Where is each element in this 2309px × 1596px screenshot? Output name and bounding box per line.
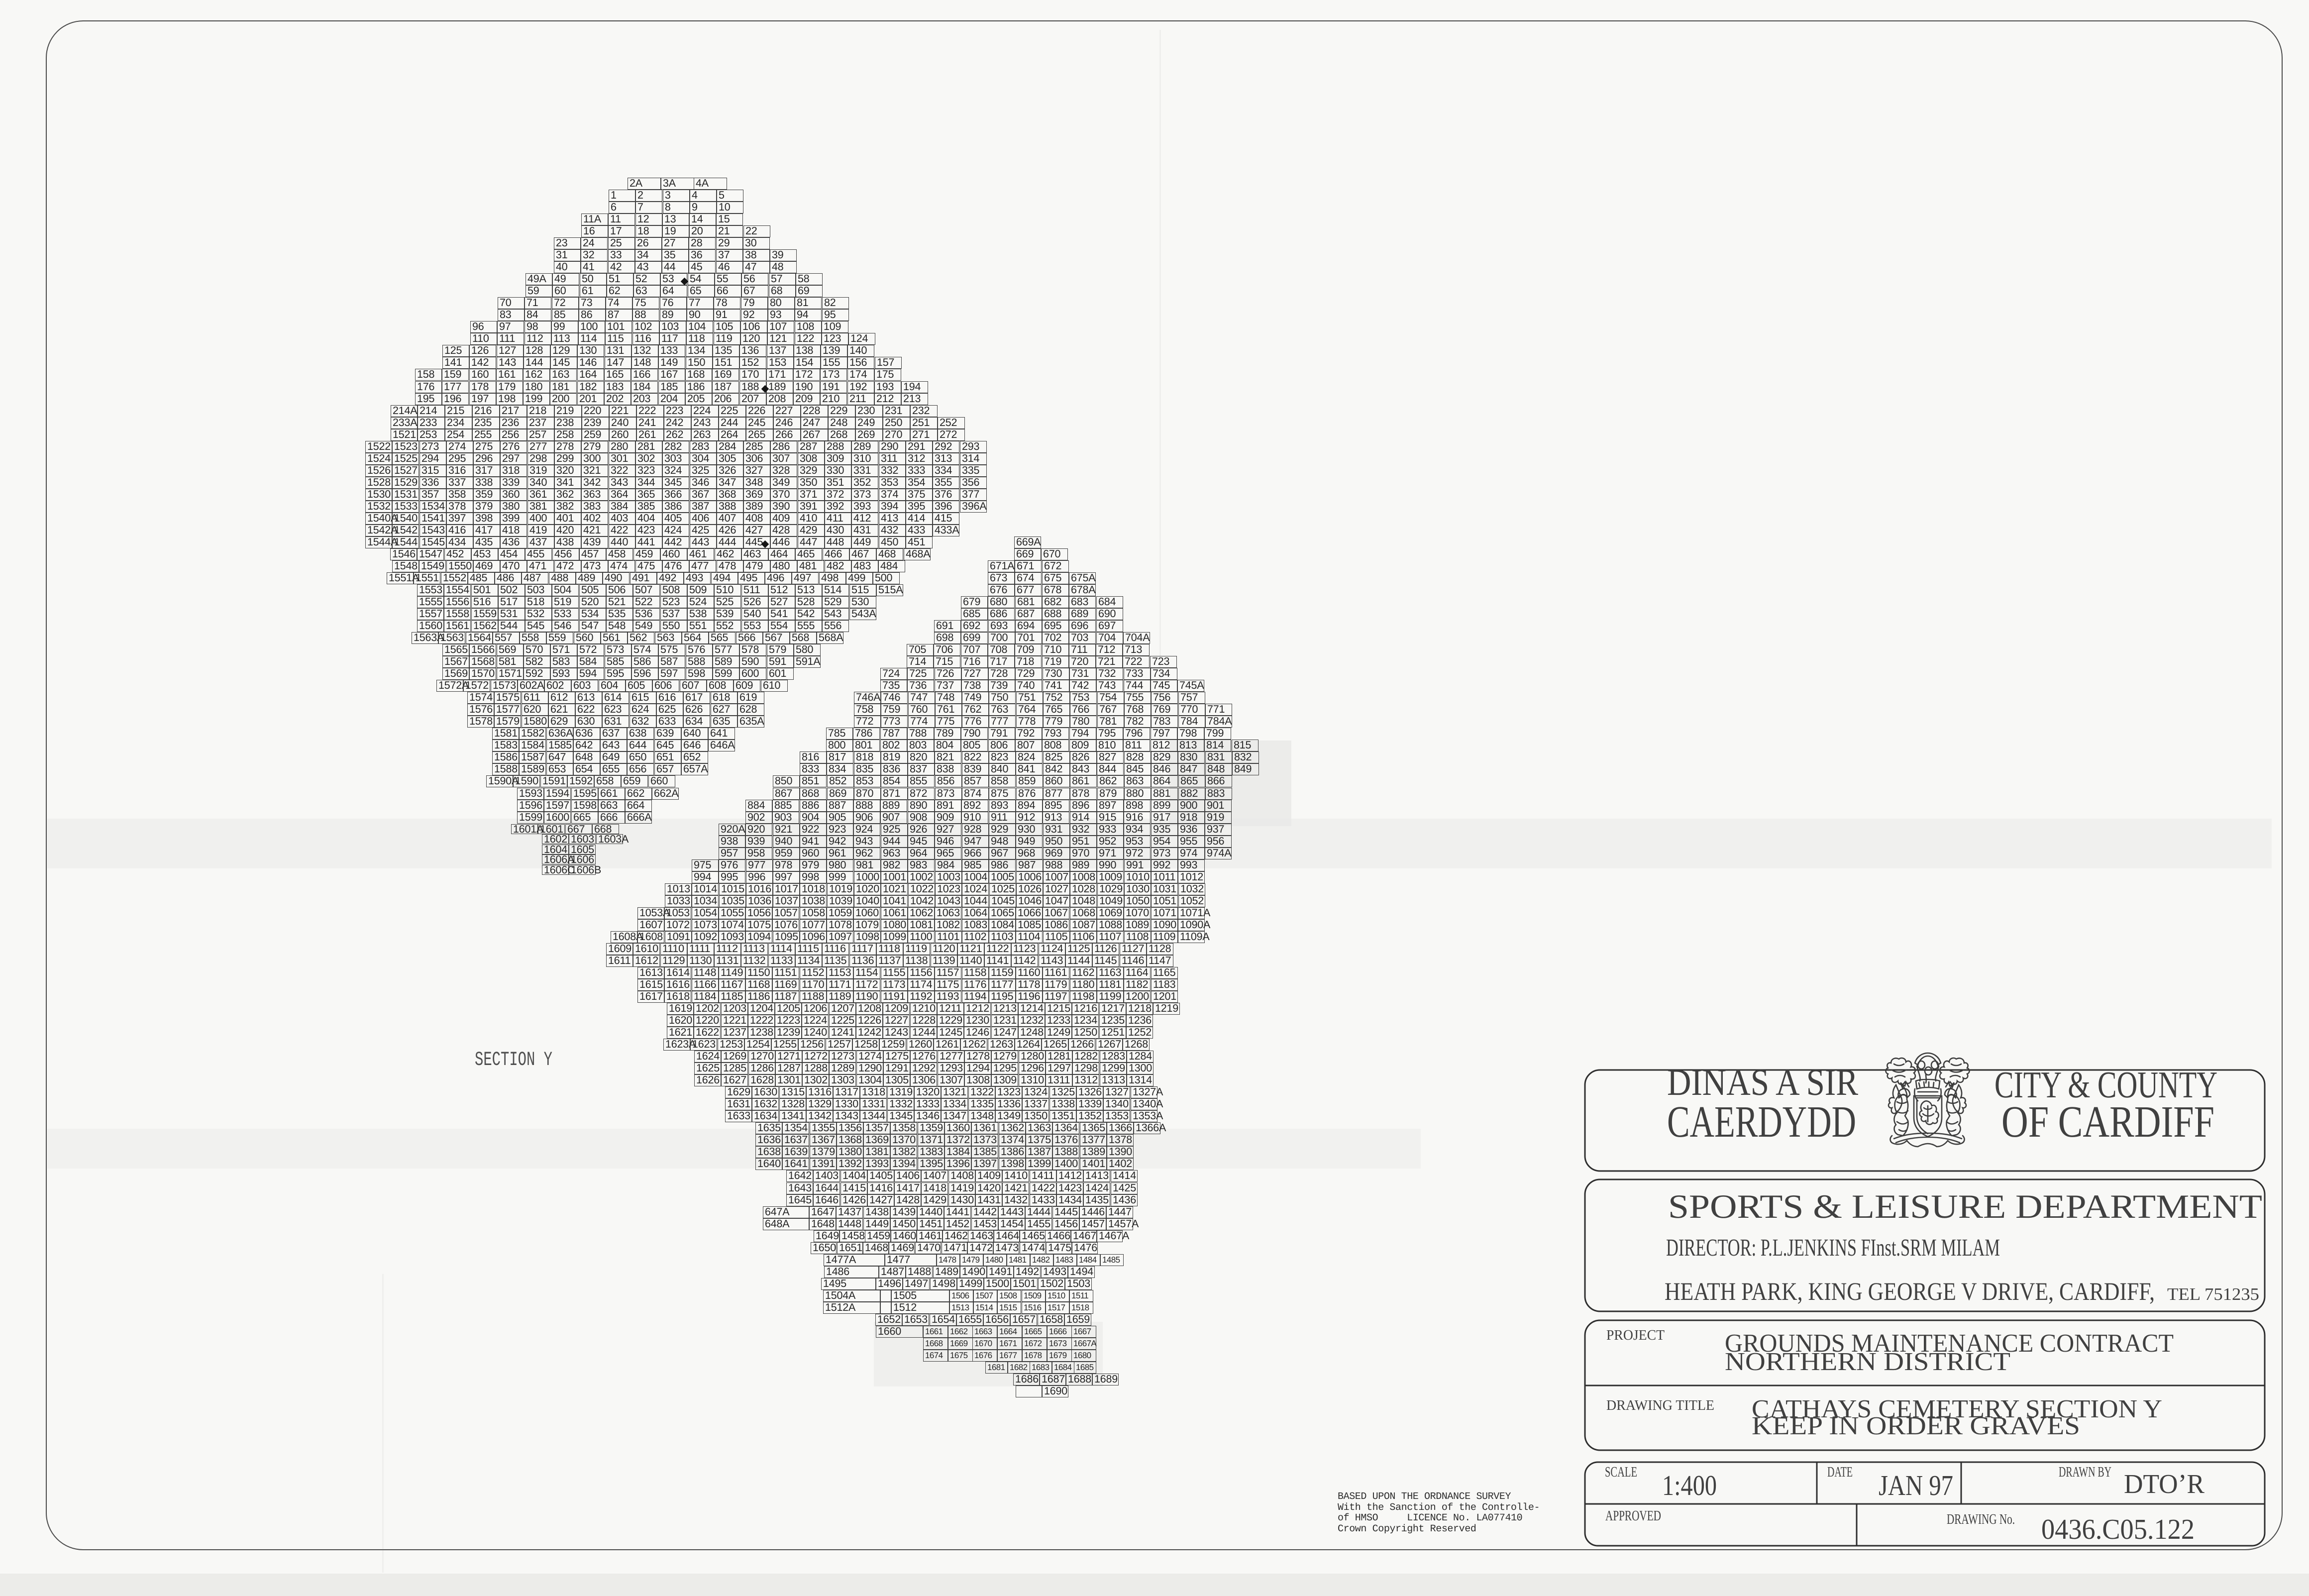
svg-text:DRAWING TITLE: DRAWING TITLE xyxy=(1606,1397,1714,1413)
svg-text:1:400: 1:400 xyxy=(1662,1469,1717,1501)
svg-text:SCALE: SCALE xyxy=(1605,1464,1637,1480)
svg-text:SECTION Y: SECTION Y xyxy=(475,1049,552,1071)
svg-text:APPROVED: APPROVED xyxy=(1605,1508,1661,1524)
svg-text:SPORTS & LEISURE DEPARTMENT: SPORTS & LEISURE DEPARTMENT xyxy=(1668,1187,2262,1225)
svg-text:DRAWING No.: DRAWING No. xyxy=(1947,1511,2015,1527)
svg-text:JAN 97: JAN 97 xyxy=(1879,1469,1953,1501)
svg-text:DRAWN BY: DRAWN BY xyxy=(2059,1464,2111,1480)
svg-text:KEEP IN ORDER GRAVES: KEEP IN ORDER GRAVES xyxy=(1752,1412,2080,1440)
svg-text:HEATH PARK, KING GEORGE V DRIV: HEATH PARK, KING GEORGE V DRIVE, CARDIFF… xyxy=(1665,1278,2155,1306)
svg-text:0436.C05.122: 0436.C05.122 xyxy=(2041,1513,2195,1545)
svg-text:DATE: DATE xyxy=(1827,1464,1853,1480)
svg-text:TEL 751235: TEL 751235 xyxy=(2167,1284,2259,1304)
svg-text:DTO’R: DTO’R xyxy=(2124,1469,2204,1499)
svg-text:NORTHERN DISTRICT: NORTHERN DISTRICT xyxy=(1725,1348,2010,1376)
svg-text:CAERDYDD: CAERDYDD xyxy=(1667,1097,1856,1147)
svg-text:OF CARDIFF: OF CARDIFF xyxy=(2001,1097,2214,1147)
svg-text:PROJECT: PROJECT xyxy=(1606,1327,1665,1343)
svg-text:DIRECTOR: P.L.JENKINS FInst.SR: DIRECTOR: P.L.JENKINS FInst.SRM MILAM xyxy=(1666,1234,2000,1261)
